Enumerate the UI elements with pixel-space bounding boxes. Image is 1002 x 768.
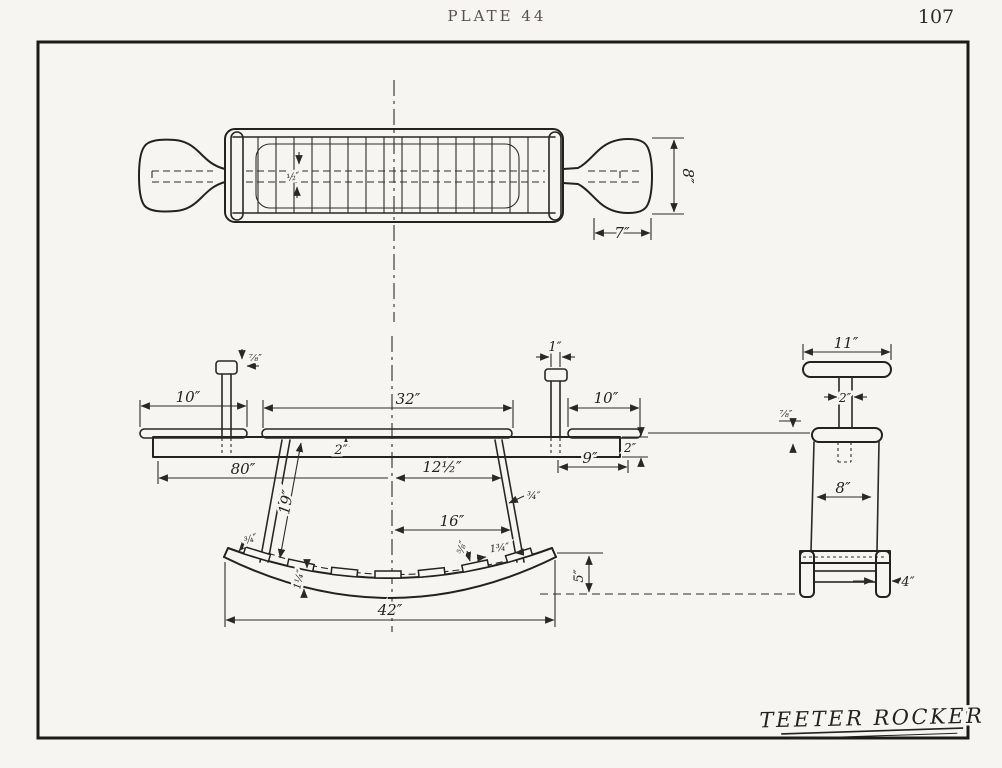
deck-end-slat-left <box>231 132 243 220</box>
left-handle-cap <box>216 361 237 374</box>
dim-right-overhang: 10″ <box>568 389 640 427</box>
right-slot-hidden <box>588 171 643 182</box>
dim-handlebar-length: 11″ <box>803 334 891 360</box>
dim-label: ¾″ <box>243 532 260 547</box>
dim-label: 16″ <box>440 512 465 530</box>
dim-label: ⅞″ <box>780 409 793 420</box>
dim-label: 42″ <box>377 601 403 619</box>
right-handle-tenon <box>551 438 560 456</box>
book-page: PLATE 44 107 8″ 7″ <box>0 0 1002 768</box>
dim-center-to-strut-bottom: 16″ <box>395 512 510 530</box>
dim-label: ½″ <box>286 171 302 185</box>
left-handle-tenon <box>222 438 231 456</box>
dim-cleat-thickness: ⅝″ <box>456 539 470 561</box>
dim-label: 80″ <box>231 460 256 478</box>
end-view: 11″ 2″ ⅞″ 8″ 4″ <box>779 334 915 597</box>
dim-label: 2″ <box>623 441 637 455</box>
right-seat-paddle <box>563 139 652 213</box>
dim-rocker-span: 42″ <box>225 560 555 627</box>
dim-rocker-rise: 5″ <box>557 553 603 592</box>
dim-center-span: 32″ <box>263 390 513 428</box>
dim-center-to-strut: 12½″ <box>396 458 501 478</box>
seat-board-end <box>812 428 882 442</box>
dim-label: 10″ <box>594 389 619 407</box>
dim-label: 5″ <box>572 569 587 582</box>
dim-board-length: 80″ <box>158 460 388 484</box>
handle-tenon-hidden <box>838 442 851 462</box>
dim-label: 1¾″ <box>489 542 510 556</box>
dim-handle-post-width: 2″ <box>824 391 867 405</box>
dim-label: 1″ <box>548 340 561 355</box>
dim-label: 7″ <box>614 224 630 242</box>
plate-drawing: PLATE 44 107 8″ 7″ <box>0 0 1002 768</box>
plan-view: 8″ 7″ ½″ <box>139 80 697 322</box>
dim-label: 32″ <box>396 390 421 408</box>
dim-board-thickness-end: 2″ <box>622 427 648 467</box>
dim-left-handle-cap: ⅞″ <box>242 349 262 366</box>
page-number: 107 <box>918 6 954 28</box>
deck-end-slat-right <box>549 132 561 220</box>
right-handle-cap <box>545 369 567 381</box>
dim-right-handle-width: 1″ <box>536 340 575 367</box>
dim-label: 12½″ <box>422 458 462 476</box>
dim-board-thickness-center: 2″ <box>333 438 347 458</box>
dim-label: 2″ <box>838 391 852 405</box>
dim-plan-seat-width: 8″ <box>652 138 697 214</box>
seat-board <box>153 437 620 457</box>
handlebar <box>803 362 891 377</box>
left-slot-hidden <box>152 171 213 182</box>
elevation-view: 10″ 32″ 10″ ⅞″ 1″ <box>140 336 810 632</box>
dim-end-seat-width: 8″ <box>817 479 871 497</box>
dim-label: 4″ <box>900 575 914 590</box>
dim-label: 9″ <box>582 449 598 467</box>
lower-cross-bar <box>814 571 876 582</box>
dim-plan-seat-length: 7″ <box>594 218 651 242</box>
dim-label: 11″ <box>834 334 859 352</box>
dim-right-pad-length: 9″ <box>558 449 628 473</box>
dim-label: ¾″ <box>527 491 541 502</box>
dim-strut-thickness: ¾″ <box>509 491 541 503</box>
right-handle-post <box>551 381 560 437</box>
dim-end-board-thickness: ⅞″ <box>779 409 801 451</box>
dim-label: 2″ <box>333 443 347 458</box>
plate-label: PLATE 44 <box>448 7 547 25</box>
title-block: TEETER ROCKER <box>759 704 985 740</box>
rocker-leg-right <box>876 551 890 597</box>
dim-label: 10″ <box>176 388 201 406</box>
rocker-leg-left <box>800 551 814 597</box>
dim-label: ⅞″ <box>249 353 262 364</box>
dim-label: 19″ <box>275 488 297 516</box>
dim-label: 8″ <box>679 168 697 184</box>
dim-label: 8″ <box>835 479 851 497</box>
